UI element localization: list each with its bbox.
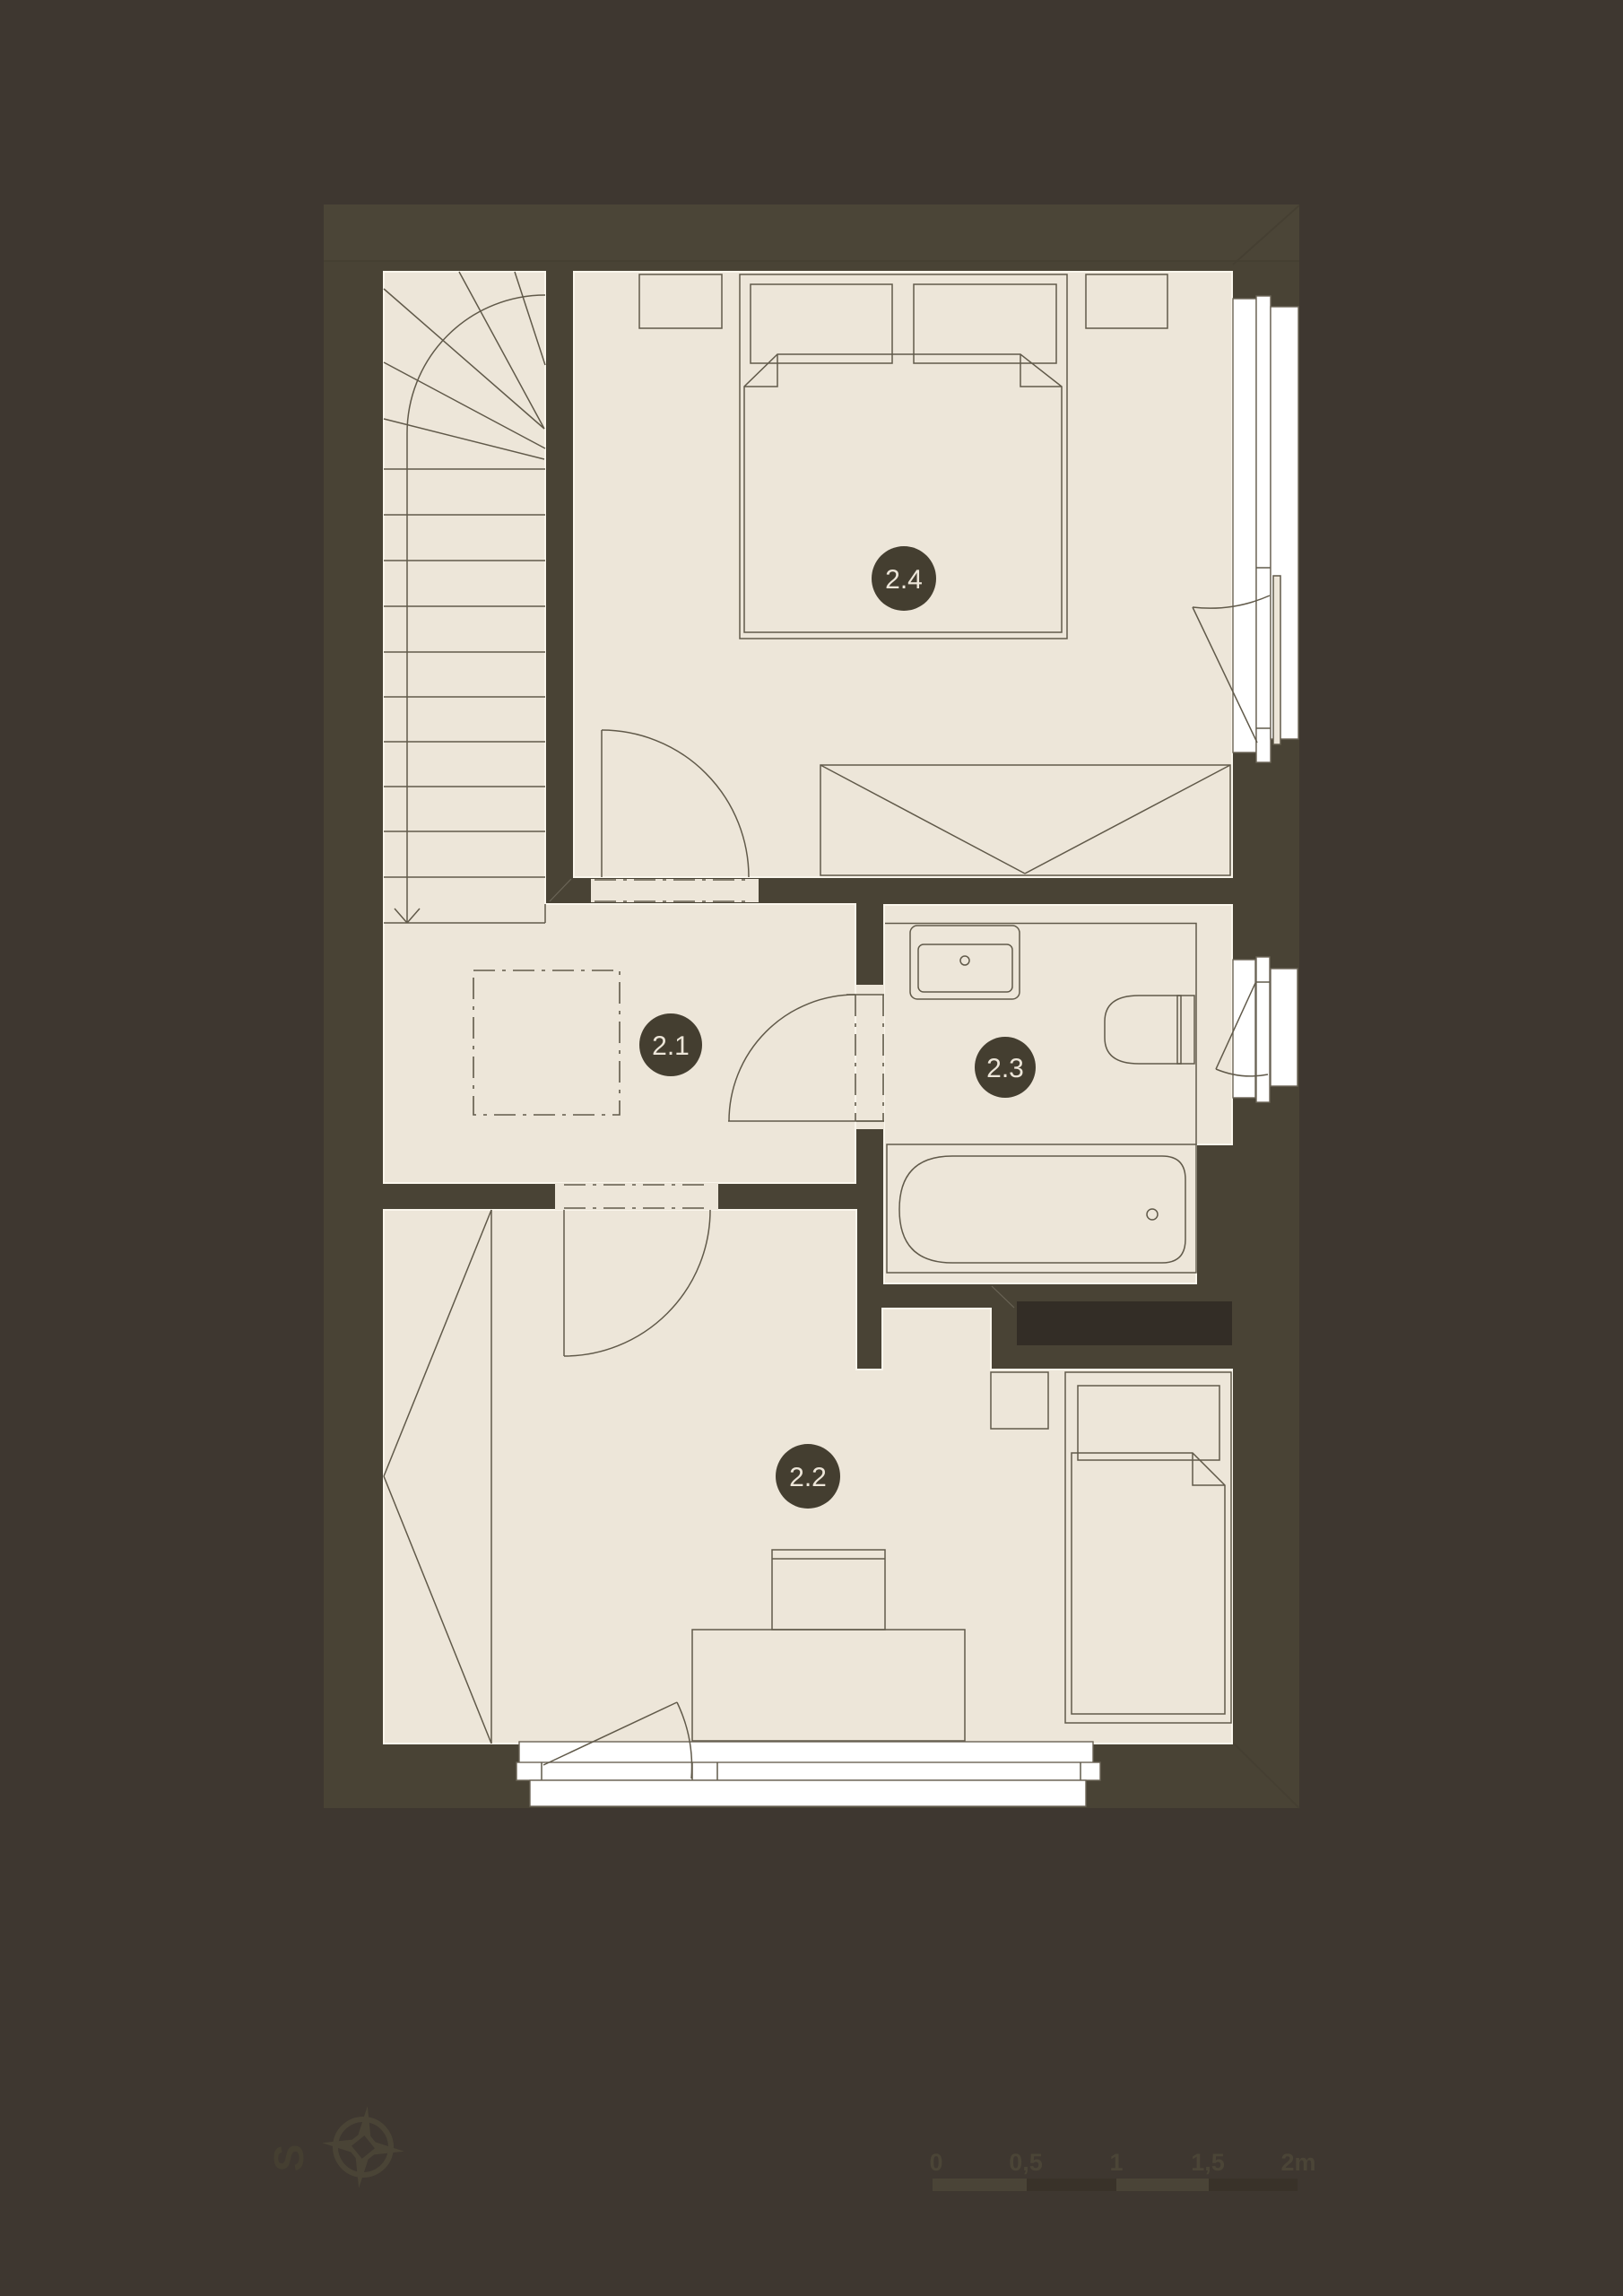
svg-text:1: 1 [1109, 2149, 1123, 2176]
svg-text:2m: 2m [1280, 2149, 1315, 2176]
svg-text:2.4: 2.4 [885, 565, 923, 595]
svg-text:0,5: 0,5 [1009, 2149, 1043, 2176]
svg-text:S: S [265, 2144, 312, 2172]
svg-text:2.3: 2.3 [986, 1054, 1024, 1083]
svg-text:2.1: 2.1 [652, 1031, 690, 1061]
svg-text:2.2: 2.2 [789, 1463, 827, 1492]
svg-text:1,5: 1,5 [1191, 2149, 1225, 2176]
svg-text:0: 0 [929, 2149, 942, 2176]
